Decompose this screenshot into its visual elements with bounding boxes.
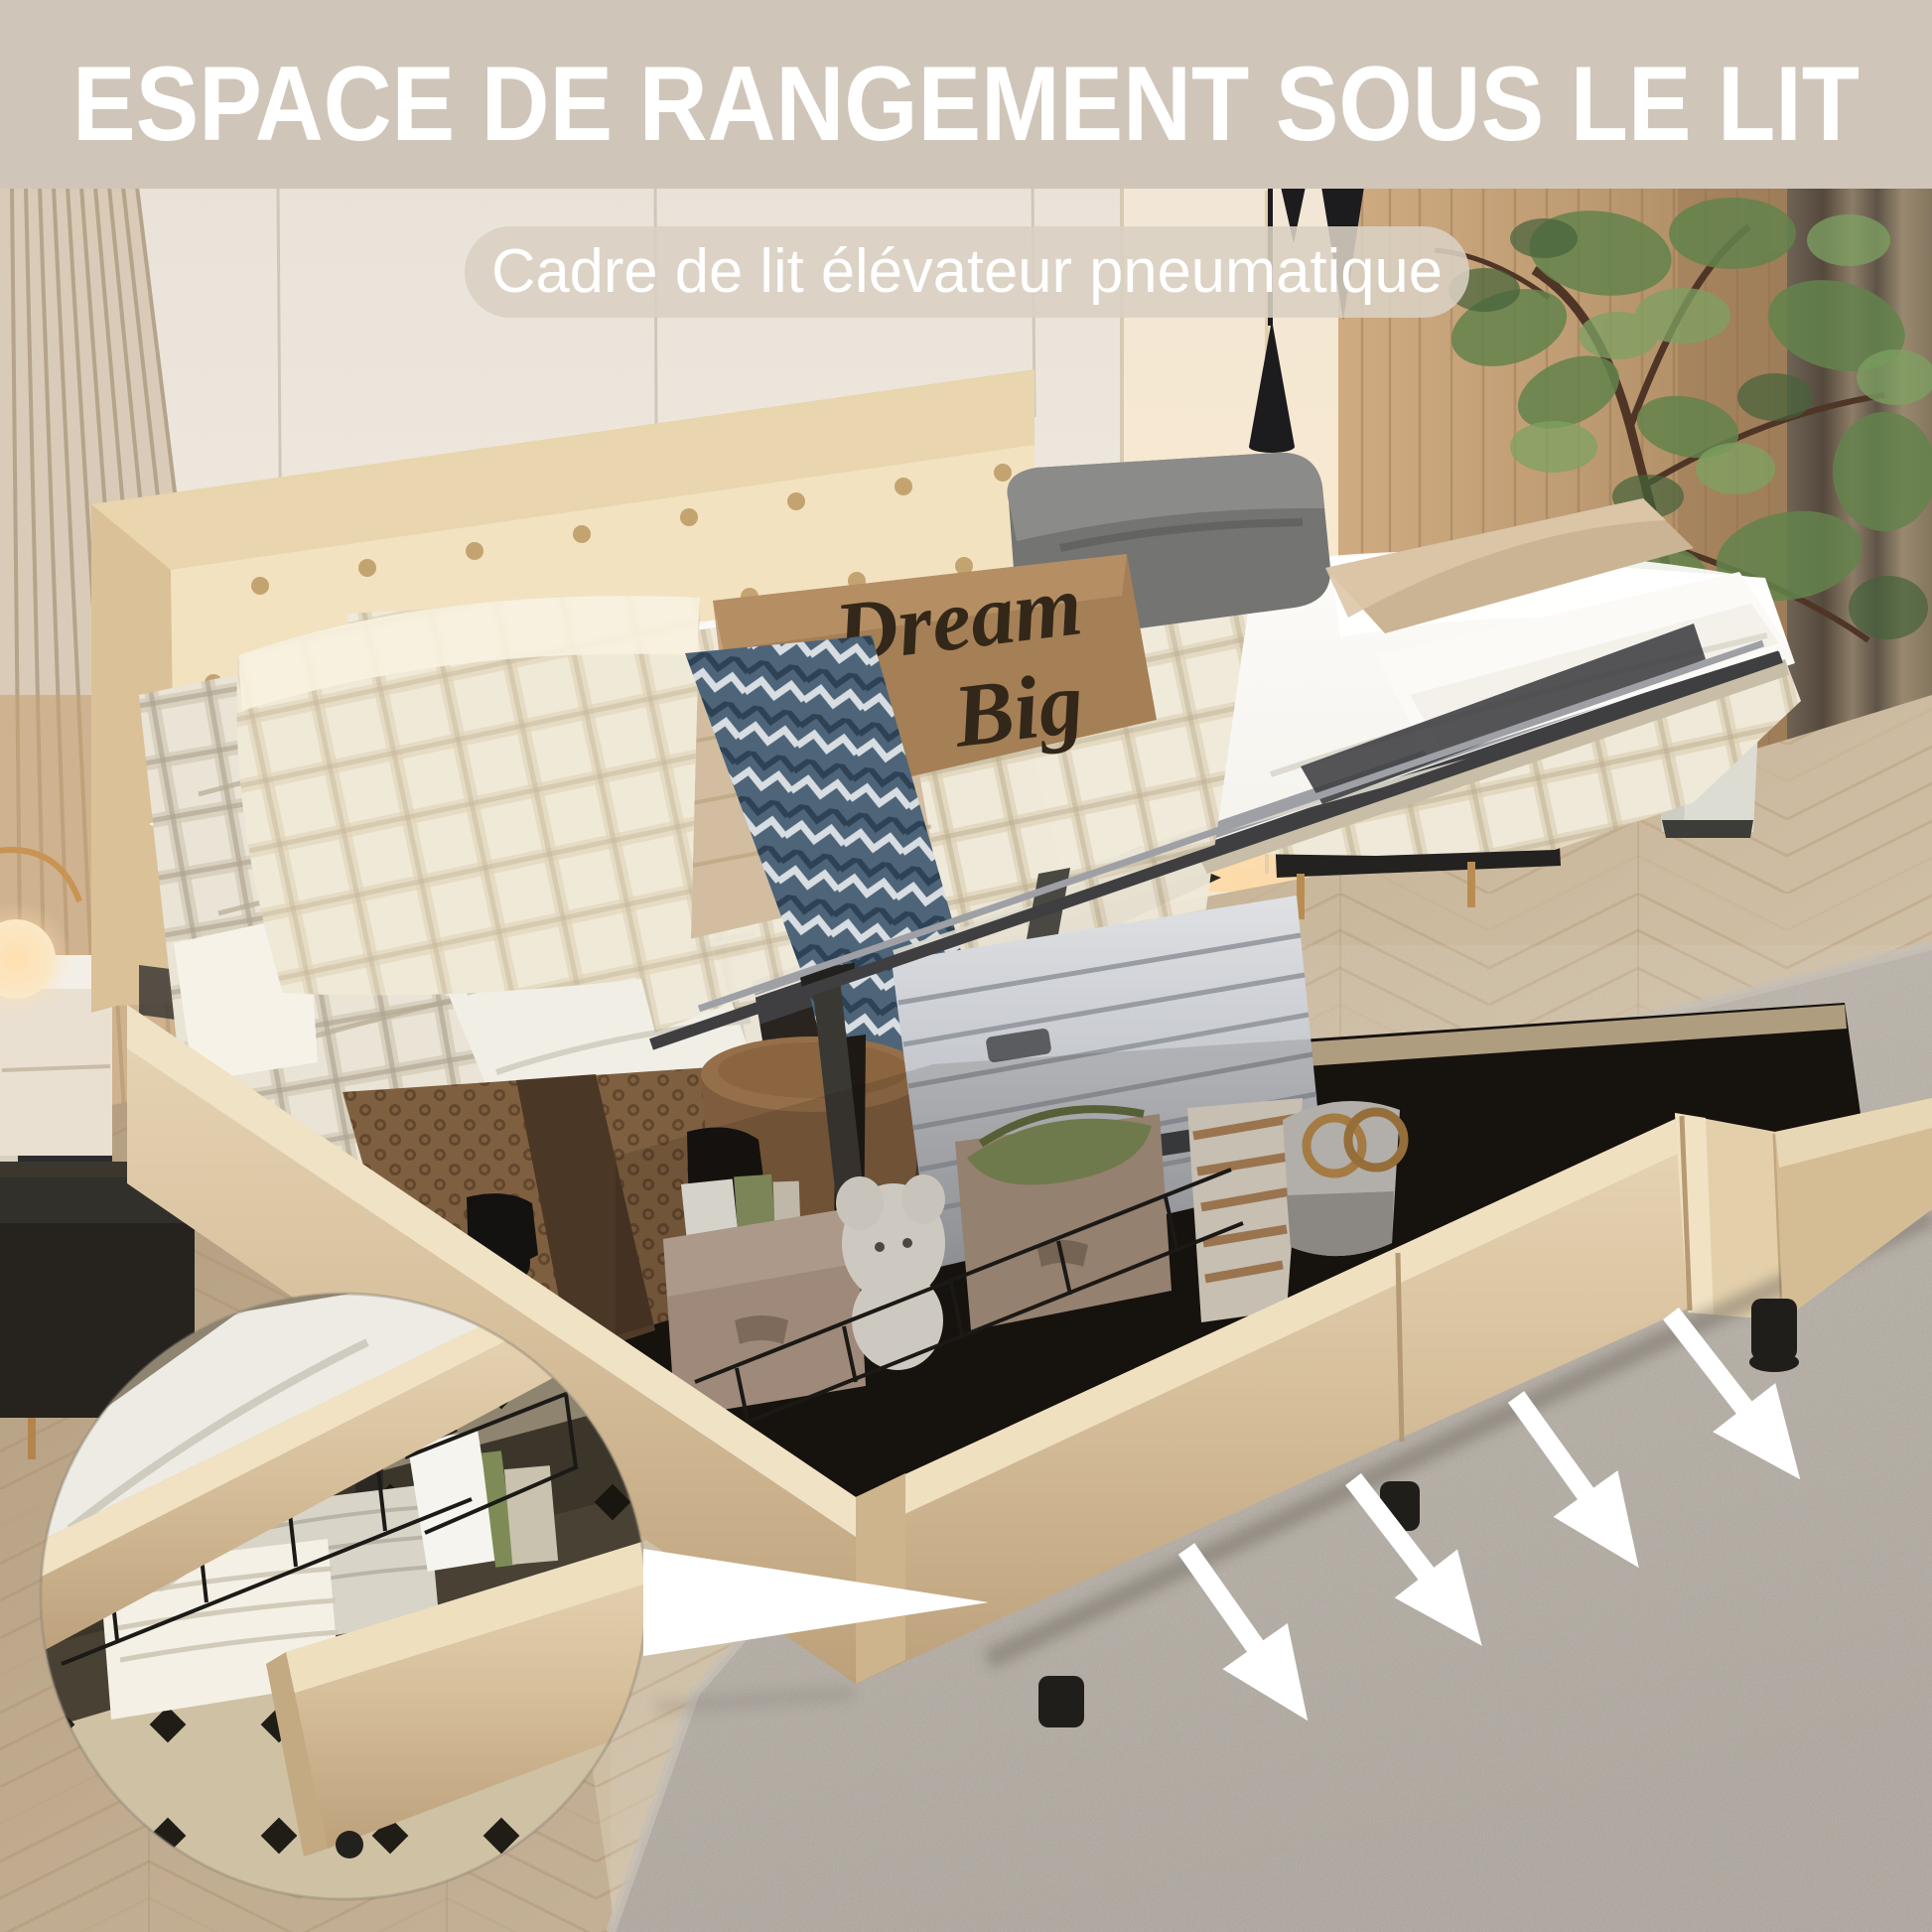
svg-text:Big: Big [947, 653, 1088, 766]
svg-text:Cadre de lit élévateur pneumat: Cadre de lit élévateur pneumatique [491, 237, 1443, 306]
svg-text:ESPACE DE RANGEMENT SOUS LE LI: ESPACE DE RANGEMENT SOUS LE LIT [72, 44, 1860, 163]
